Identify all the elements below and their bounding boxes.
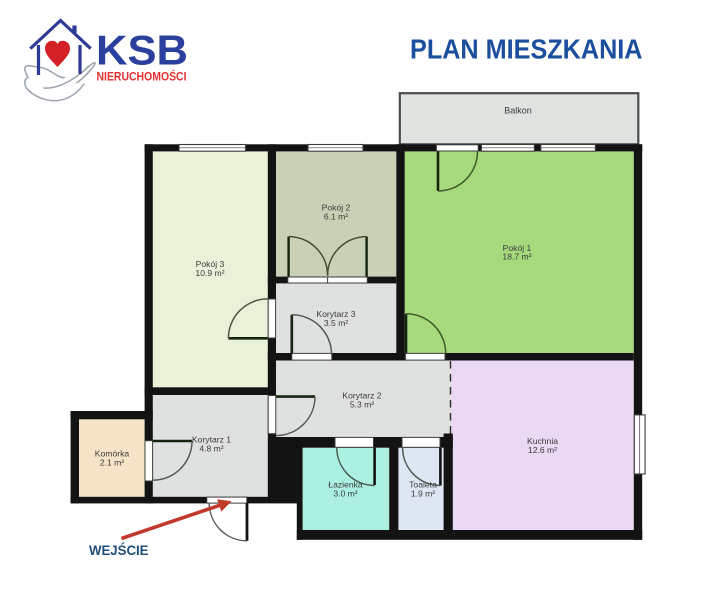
svg-text:Balkon: Balkon (504, 106, 532, 116)
svg-text:18.7 m²: 18.7 m² (502, 252, 531, 262)
svg-text:WEJŚCIE: WEJŚCIE (89, 541, 149, 558)
svg-text:5.3 m²: 5.3 m² (350, 399, 374, 409)
svg-text:1.9 m²: 1.9 m² (411, 488, 435, 498)
svg-text:6.1 m²: 6.1 m² (324, 211, 348, 221)
svg-text:PLAN MIESZKANIA: PLAN MIESZKANIA (410, 33, 643, 64)
svg-text:KSB: KSB (96, 27, 188, 74)
svg-text:12.6 m²: 12.6 m² (528, 445, 557, 455)
svg-text:3.5 m²: 3.5 m² (324, 318, 348, 328)
svg-text:4.8 m²: 4.8 m² (199, 443, 223, 453)
svg-text:2.1 m²: 2.1 m² (100, 457, 124, 467)
svg-text:10.9 m²: 10.9 m² (195, 268, 224, 278)
svg-text:3.0 m²: 3.0 m² (333, 488, 357, 498)
svg-text:NIERUCHOMOŚCI: NIERUCHOMOŚCI (97, 69, 187, 84)
